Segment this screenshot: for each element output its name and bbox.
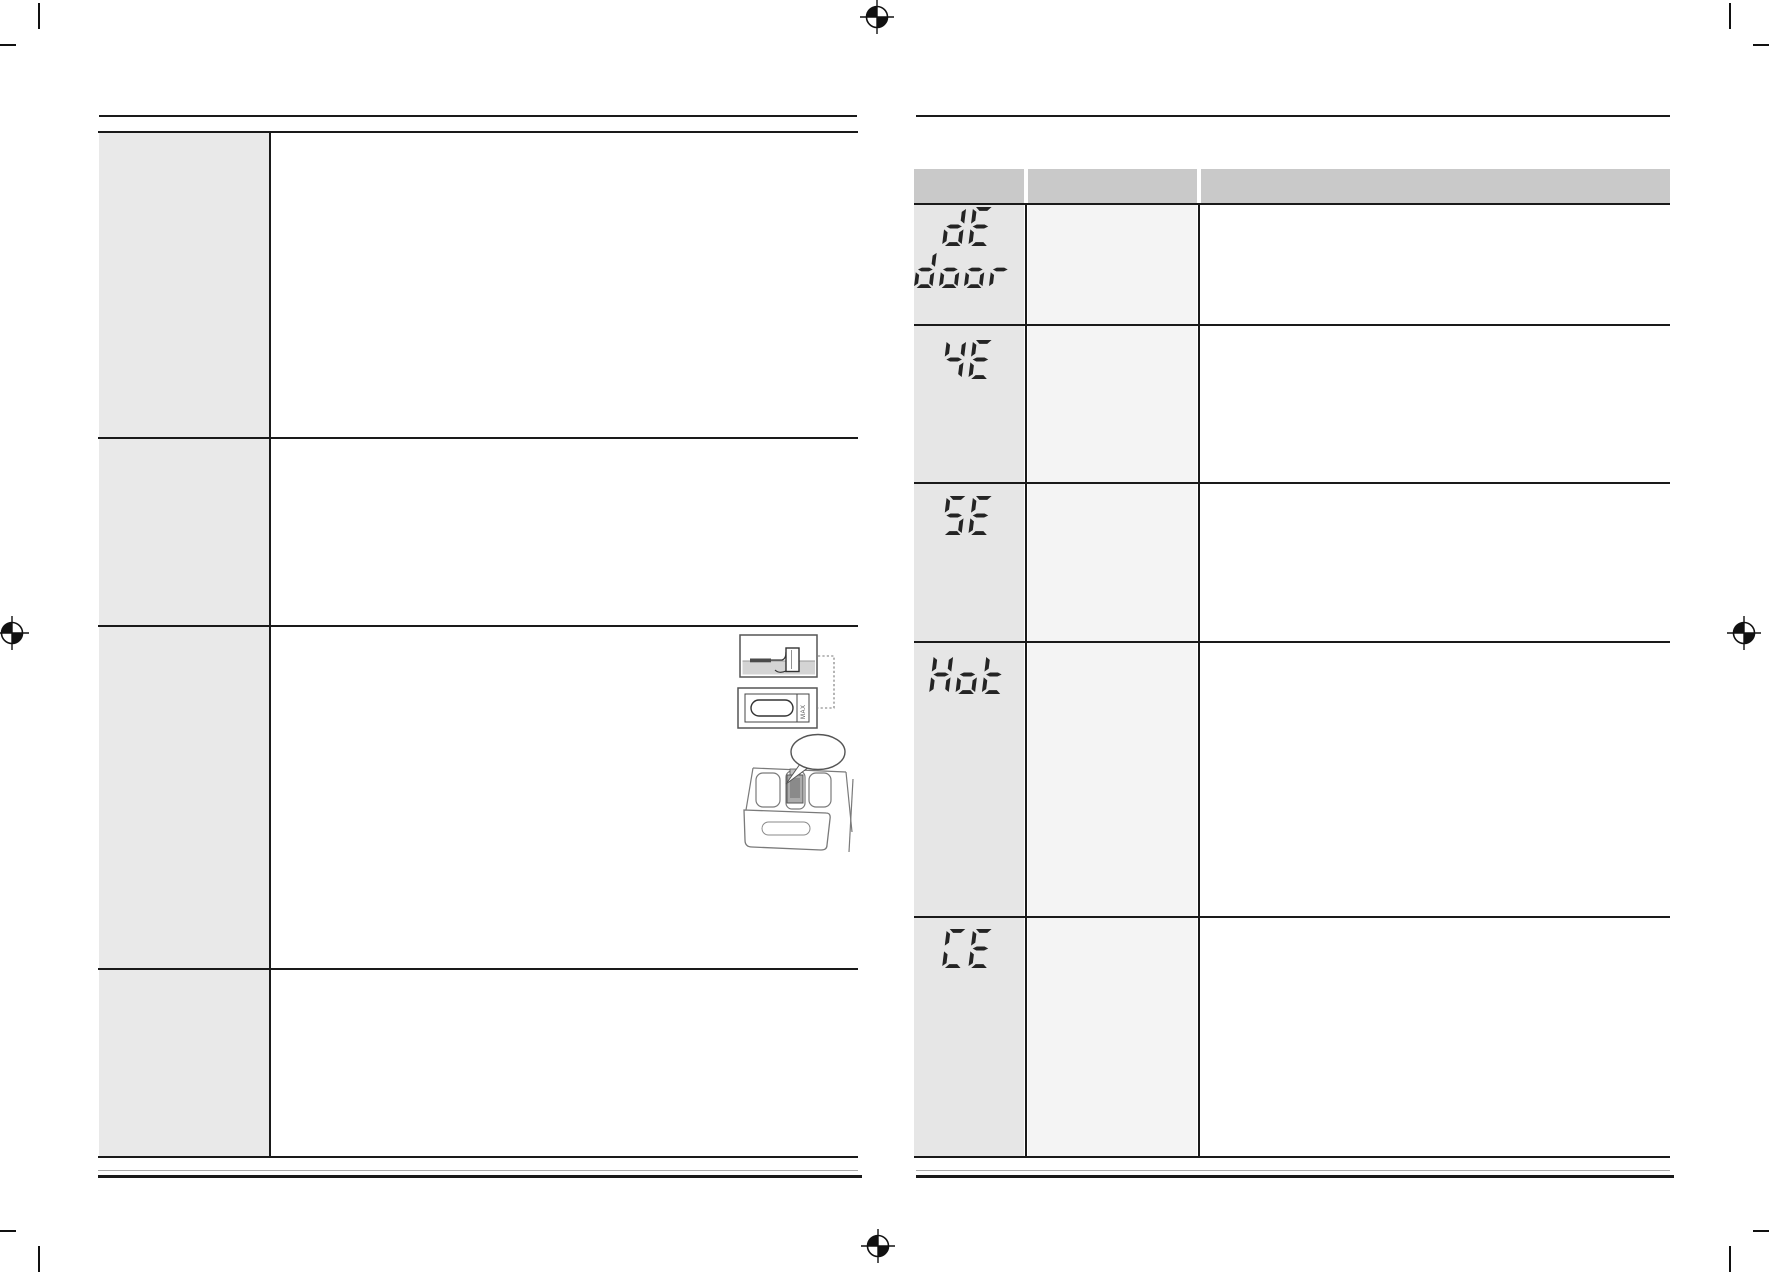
trim-mark-top-left-v [38,3,40,29]
registration-mark-icon [855,0,899,39]
error-meaning-cell [1028,205,1197,324]
error-meaning-cell [1028,326,1197,482]
error-code-display-dE [914,207,1024,246]
left-table-top-border [98,131,858,133]
error-meaning-cell [1028,643,1197,916]
right-table-row-divider [914,641,1670,643]
left-page-bottom-thick-rule [98,1175,862,1178]
left-table-label-cell [99,970,269,1156]
trim-mark-bottom-right-v [1729,1246,1731,1272]
header-column-gap [1024,169,1028,203]
left-table-row-divider [98,625,858,627]
drawer-front-panel [744,810,830,850]
trim-mark-top-right-v [1729,3,1731,29]
manual-page-spread: MAX [0,0,1769,1276]
error-code-display-CE [914,929,1024,968]
left-table-label-cell [99,133,269,437]
left-table-bottom-border [98,1156,858,1158]
header-column-gap [1197,169,1201,203]
trim-mark-bottom-left-h [0,1230,16,1232]
error-code-display-Hot [914,655,1024,694]
error-code-display-5E [914,496,1024,535]
left-page-bottom-thin-rule [98,1170,858,1171]
left-table-column-divider [269,131,271,1158]
error-code-display-4E [914,340,1024,379]
right-page-top-rule [916,115,1670,117]
left-table-label-cell [99,439,269,625]
right-table-column-divider [1198,205,1200,1156]
right-table-header-bottom-border [914,203,1670,205]
registration-mark-icon [0,611,34,655]
right-table-row-divider [914,916,1670,918]
detergent-drawer-illustration: MAX [735,630,860,860]
left-page-top-rule [99,115,857,117]
right-page-bottom-thick-rule [916,1175,1674,1178]
trim-mark-bottom-right-h [1753,1230,1769,1232]
trim-mark-bottom-left-v [38,1246,40,1272]
right-table-row-divider [914,324,1670,326]
right-table-row-divider [914,482,1670,484]
error-meaning-cell [1028,484,1197,641]
right-page-bottom-thin-rule [916,1170,1670,1171]
left-table-row-divider [98,968,858,970]
dotted-connector-line [818,656,834,708]
registration-mark-icon [856,1224,900,1268]
callout-bubble [791,735,845,770]
max-level-label: MAX [801,704,807,719]
registration-mark-icon [1722,611,1766,655]
left-table-row-divider [98,437,858,439]
error-meaning-cell [1028,918,1197,1156]
trim-mark-top-left-h [0,44,16,46]
error-code-display-door [910,251,1020,288]
right-table-column-divider [1025,205,1027,1156]
right-table-bottom-border [914,1156,1670,1158]
trim-mark-top-right-h [1753,44,1769,46]
left-table-label-cell [99,627,269,968]
